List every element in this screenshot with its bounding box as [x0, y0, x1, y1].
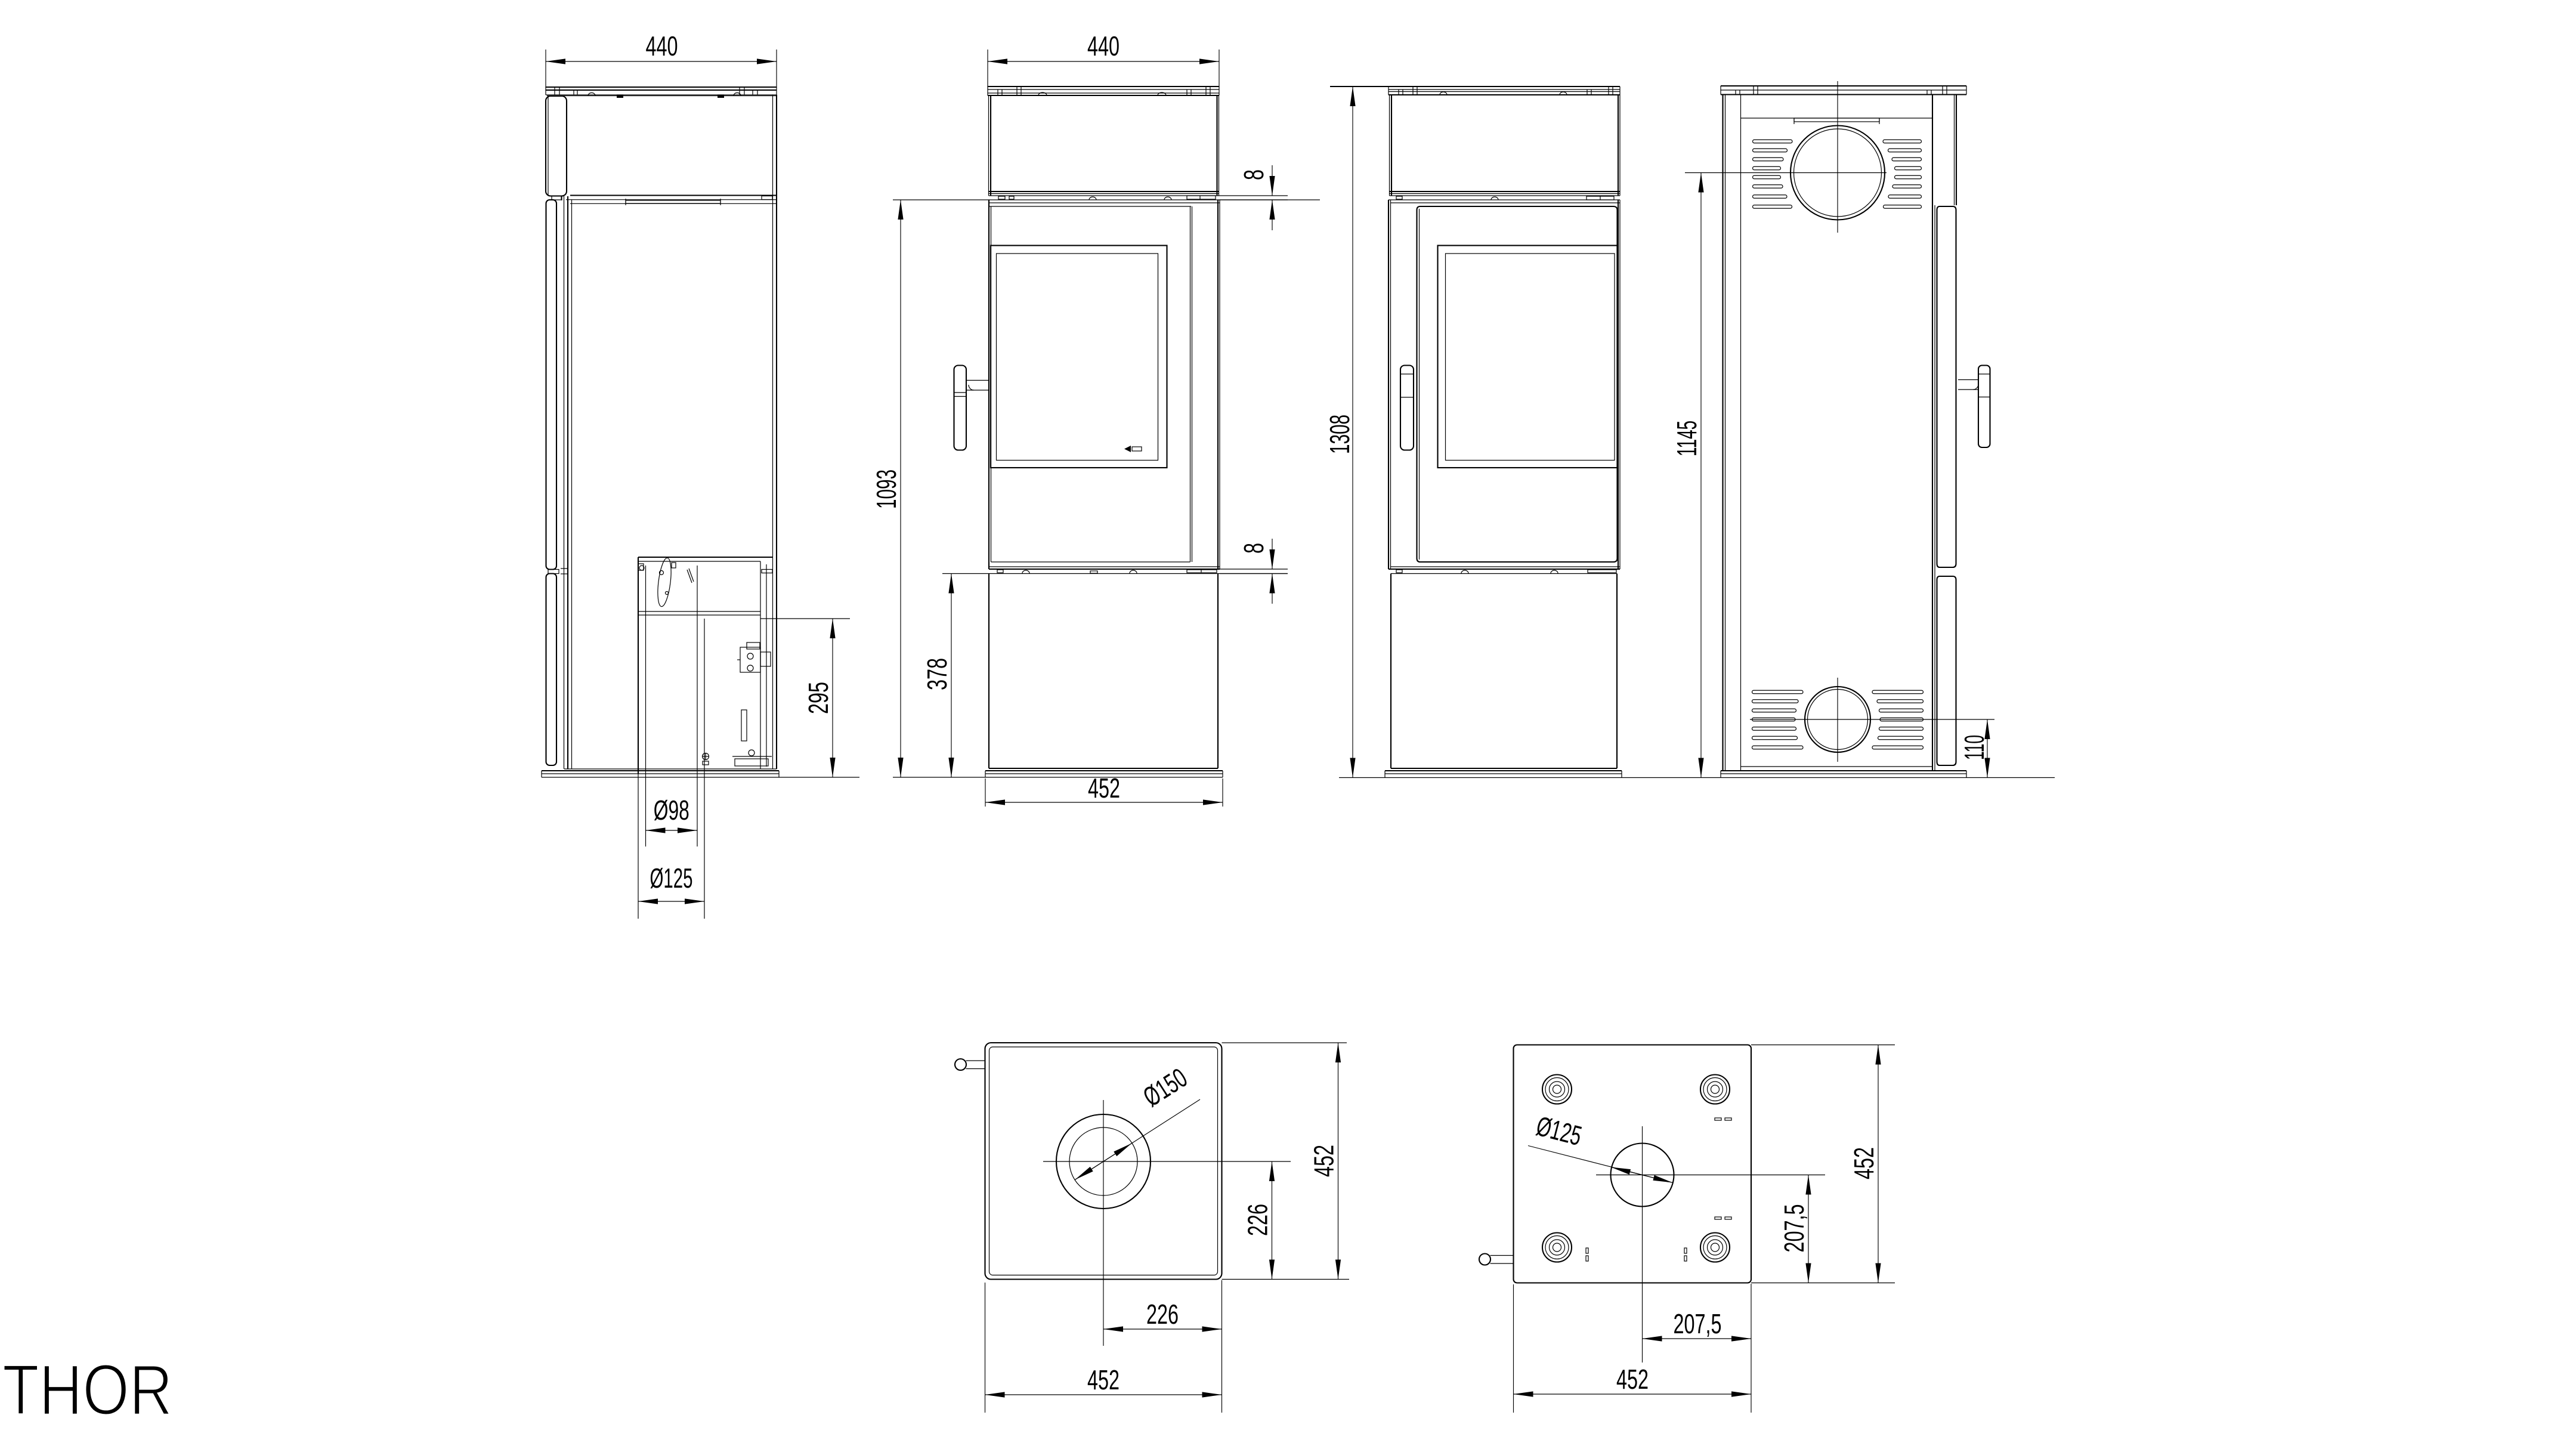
- svg-text:452: 452: [1087, 1364, 1120, 1395]
- svg-text:THOR: THOR: [2, 1351, 173, 1430]
- svg-text:Ø125: Ø125: [650, 863, 693, 894]
- svg-text:440: 440: [646, 30, 678, 61]
- svg-text:1145: 1145: [1671, 421, 1702, 456]
- svg-text:440: 440: [1087, 30, 1120, 61]
- svg-text:207,5: 207,5: [1674, 1308, 1722, 1339]
- svg-text:452: 452: [1309, 1145, 1340, 1177]
- svg-text:295: 295: [803, 682, 834, 714]
- svg-text:226: 226: [1242, 1204, 1273, 1236]
- svg-text:207,5: 207,5: [1779, 1204, 1810, 1253]
- svg-text:226: 226: [1146, 1299, 1179, 1330]
- svg-text:8: 8: [1238, 543, 1269, 554]
- svg-text:1093: 1093: [871, 469, 902, 509]
- svg-text:452: 452: [1848, 1147, 1879, 1179]
- svg-text:452: 452: [1616, 1364, 1649, 1395]
- svg-text:8: 8: [1238, 169, 1269, 180]
- svg-text:1308: 1308: [1324, 415, 1355, 454]
- svg-text:110: 110: [1959, 735, 1990, 760]
- svg-text:Ø98: Ø98: [654, 795, 689, 826]
- svg-text:452: 452: [1088, 773, 1120, 804]
- svg-text:378: 378: [921, 658, 953, 690]
